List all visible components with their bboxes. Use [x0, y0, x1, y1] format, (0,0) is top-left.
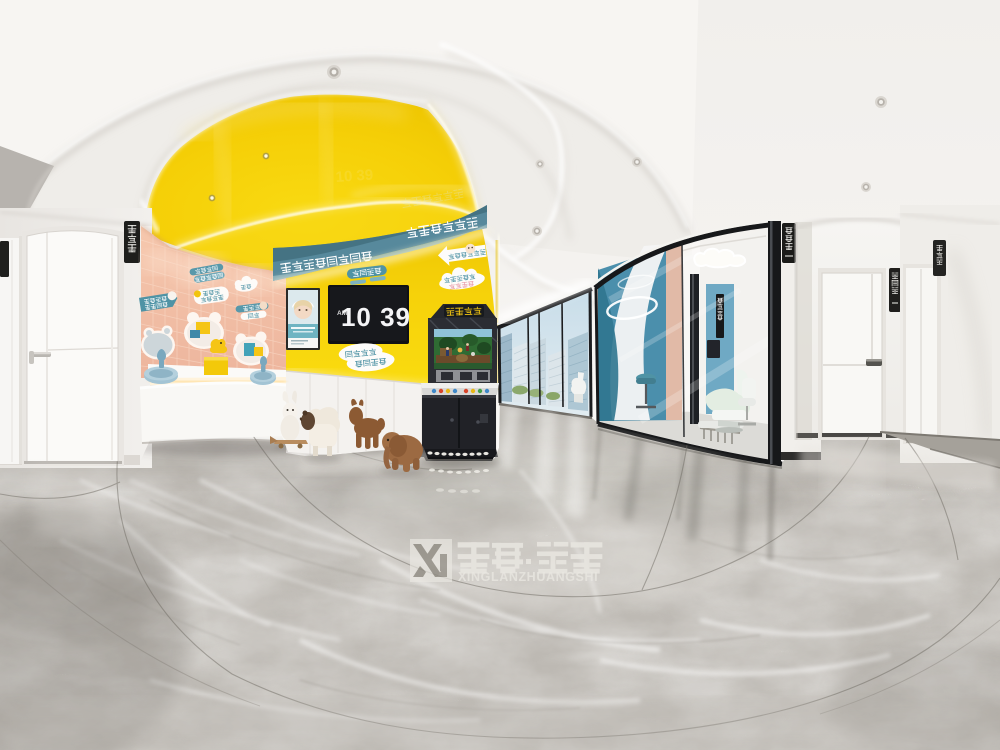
svg-text:10 39: 10 39: [341, 302, 411, 332]
svg-text:XINGLANZHUANGSHI: XINGLANZHUANGSHI: [458, 570, 598, 584]
svg-text:10 39: 10 39: [335, 166, 374, 186]
